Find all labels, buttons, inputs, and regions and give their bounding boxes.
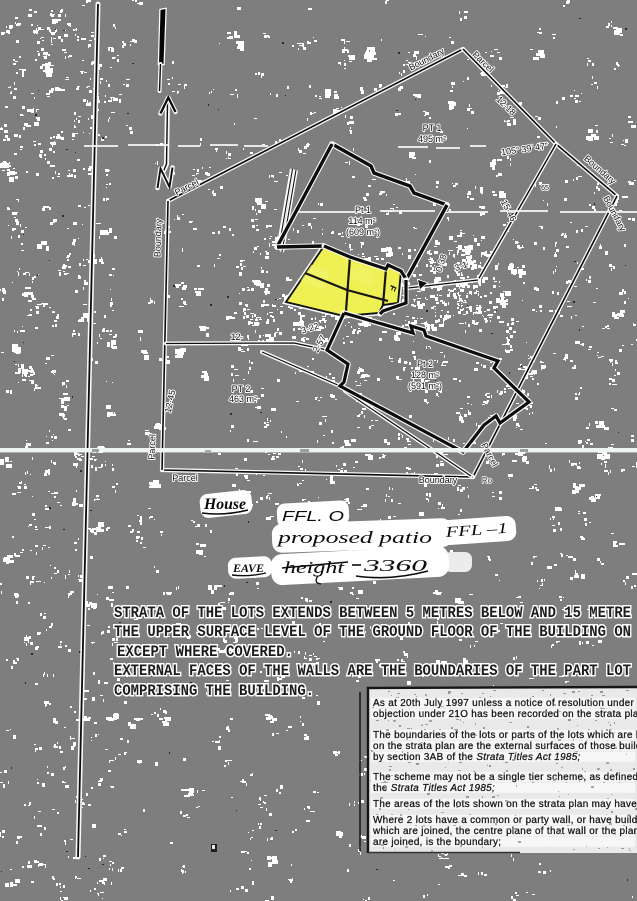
svg-text:The boundaries of the lots or: The boundaries of the lots or parts of t…	[373, 730, 637, 741]
svg-text:463 m²: 463 m²	[229, 394, 257, 404]
svg-text:THE UPPER SURFACE LEVEL OF THE: THE UPPER SURFACE LEVEL OF THE GROUND FL…	[114, 623, 631, 641]
svg-text:105° 39’ 47”: 105° 39’ 47”	[500, 141, 548, 157]
svg-text:Parcel: Parcel	[173, 177, 200, 197]
svg-text:EXTERNAL FACES OF THE WALLS AR: EXTERNAL FACES OF THE WALLS ARE THE BOUN…	[114, 662, 631, 680]
svg-text:COMPRISING THE BUILDING.: COMPRISING THE BUILDING.	[114, 682, 314, 700]
svg-text:objection under 21O has been r: objection under 21O has been recorded on…	[373, 709, 637, 720]
svg-text:Parcel: Parcel	[172, 473, 198, 483]
svg-text:114 m²: 114 m²	[348, 216, 375, 226]
svg-text:Pt 1: Pt 1	[355, 205, 371, 215]
svg-text:12·: 12·	[230, 332, 243, 342]
svg-text:STRATA OF THE LOTS EXTENDS BET: STRATA OF THE LOTS EXTENDS BETWEEN 5 MET…	[114, 604, 631, 622]
svg-text:by section 3AB of the Strata T: by section 3AB of the Strata Titles Act …	[373, 752, 581, 763]
svg-text:Boundary: Boundary	[152, 218, 163, 257]
svg-text:Pt 2: Pt 2	[417, 359, 433, 369]
svg-text:proposed patio: proposed patio	[276, 528, 432, 547]
svg-text:the Strata Titles Act 1985;: the Strata Titles Act 1985;	[373, 783, 495, 794]
svg-text:Where 2 lots have a common or: Where 2 lots have a common or party wall…	[373, 815, 637, 826]
svg-text:The scheme may not be a single: The scheme may not be a single tier sche…	[373, 772, 637, 783]
svg-text:FFL. O: FFL. O	[282, 508, 344, 525]
svg-text:(591 m²): (591 m²)	[408, 381, 442, 391]
svg-text:PT 2: PT 2	[232, 384, 251, 394]
svg-text:which are joined, the centre p: which are joined, the centre plane of th…	[372, 826, 637, 837]
svg-text:(609 m²): (609 m²)	[346, 227, 380, 237]
svg-text:65: 65	[541, 185, 549, 192]
svg-text:3360: 3360	[362, 556, 428, 575]
svg-text:EAVE: EAVE	[232, 561, 264, 575]
svg-text:495 m²: 495 m²	[418, 134, 446, 144]
svg-text:12·18: 12·18	[494, 94, 518, 117]
svg-text:House: House	[203, 496, 246, 513]
svg-text:As at 20th July 1997 unless a: As at 20th July 1997 unless a notice of …	[373, 698, 637, 709]
svg-text:on the strata plan are the ext: on the strata plan are the external surf…	[373, 741, 637, 752]
svg-text:Parcel: Parcel	[147, 434, 158, 460]
svg-text:Ro: Ro	[482, 476, 493, 485]
svg-text:128 m²: 128 m²	[411, 370, 439, 380]
svg-text:Boundary: Boundary	[419, 475, 458, 485]
svg-text:PT 1: PT 1	[423, 123, 442, 133]
svg-text:EXCEPT WHERE COVERED.: EXCEPT WHERE COVERED.	[117, 643, 293, 661]
